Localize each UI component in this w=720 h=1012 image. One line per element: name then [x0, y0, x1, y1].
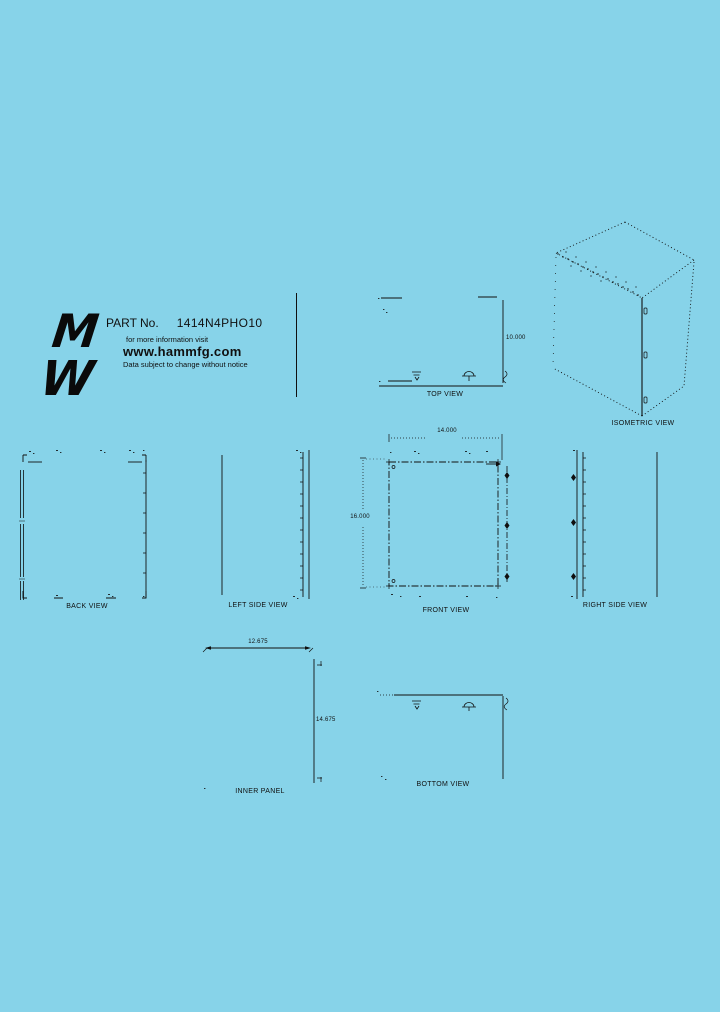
front-view-height-dim: 16.000 — [344, 514, 376, 520]
pan-screw-icon — [462, 372, 476, 382]
width-dimension — [389, 434, 502, 460]
drawing-canvas — [0, 0, 720, 1012]
bottom-view-drawing — [380, 695, 508, 779]
inner-panel-height-dim: 14.675 — [316, 717, 336, 723]
right-side-view-label: RIGHT SIDE VIEW — [569, 602, 661, 609]
right-side-view-drawing — [571, 450, 657, 599]
flat-screw-icon — [412, 372, 421, 380]
perforation-texture — [557, 251, 638, 295]
panel-width-dimension — [203, 646, 313, 652]
height-dimension — [360, 458, 386, 588]
inner-panel-width-dim: 12.675 — [243, 639, 273, 645]
front-view-width-dim: 14.000 — [432, 428, 462, 434]
isometric-view-drawing — [553, 222, 694, 416]
flat-screw-icon — [412, 701, 421, 709]
bottom-view-label: BOTTOM VIEW — [405, 781, 481, 788]
left-side-view-drawing — [222, 450, 309, 599]
inner-panel-label: INNER PANEL — [222, 788, 298, 795]
front-view-drawing — [360, 434, 510, 589]
front-view-label: FRONT VIEW — [411, 607, 481, 614]
inner-panel-drawing — [203, 646, 322, 783]
back-view-label: BACK VIEW — [52, 603, 122, 610]
datasheet-page: M W PART No.1414N4PHO10 for more informa… — [0, 0, 720, 1012]
corner-marks — [386, 459, 501, 589]
top-view-label: TOP VIEW — [410, 391, 480, 398]
micro-annotations — [29, 298, 575, 789]
hinge-symbols — [571, 474, 576, 580]
top-view-depth-dim: 10.000 — [506, 335, 526, 341]
top-view-drawing — [379, 297, 507, 386]
pan-screw-icon — [462, 703, 476, 712]
hinge-marks — [644, 308, 647, 403]
isometric-view-label: ISOMETRIC VIEW — [598, 420, 688, 427]
left-side-view-label: LEFT SIDE VIEW — [213, 602, 303, 609]
back-view-drawing — [19, 455, 146, 600]
